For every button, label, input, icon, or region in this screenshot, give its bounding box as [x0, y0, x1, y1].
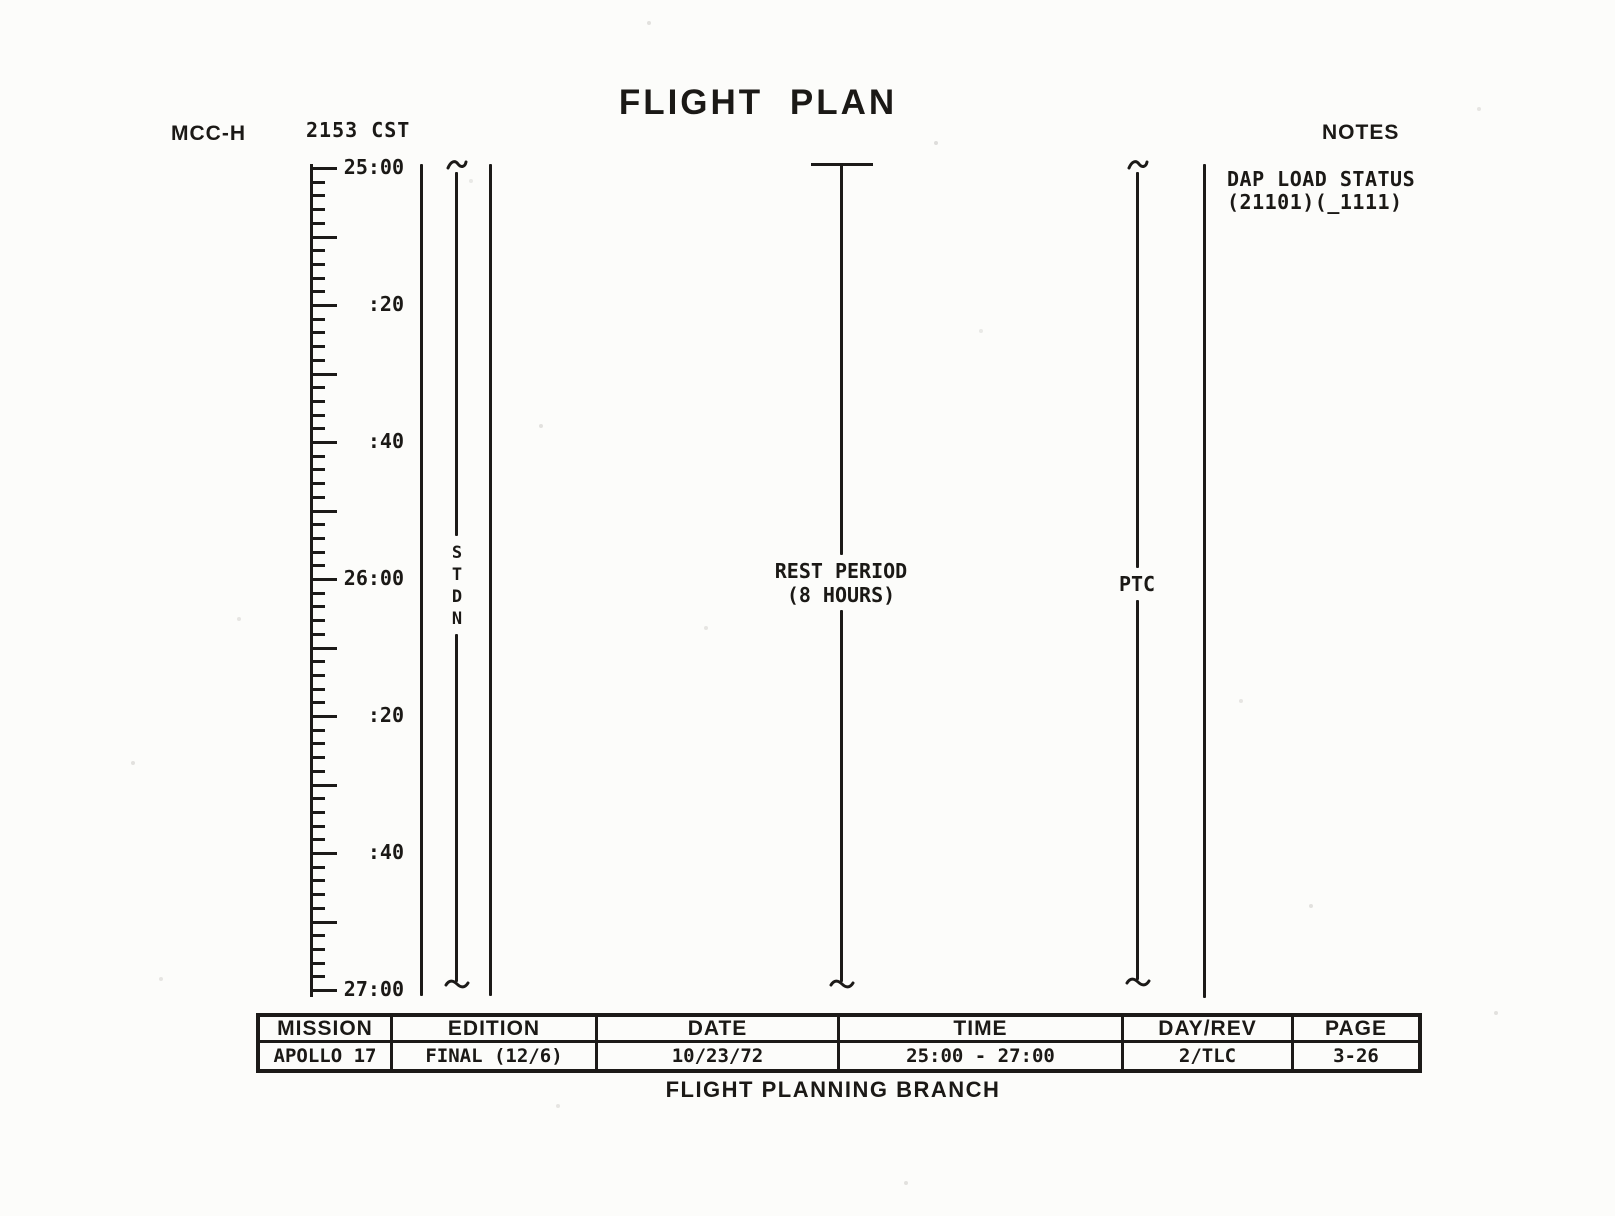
notes-divider-line — [1203, 164, 1206, 998]
ruler-tick — [311, 893, 325, 896]
rest-period-line-lower — [840, 610, 843, 982]
ruler-tick-label: :40 — [340, 430, 404, 453]
flight-planning-branch-label: FLIGHT PLANNING BRANCH — [633, 1077, 1033, 1103]
ruler-tick — [311, 482, 325, 485]
ruler-tick-label: 26:00 — [340, 567, 404, 590]
ptc-line-lower — [1136, 600, 1139, 980]
stdn-bottom-squiggle-icon — [444, 978, 470, 990]
table-header-date: DATE — [598, 1017, 840, 1043]
ruler-tick — [311, 523, 325, 526]
stdn-label: S T D N — [443, 542, 471, 630]
ptc-line-upper — [1136, 172, 1139, 568]
ruler-tick — [311, 605, 325, 608]
ruler-tick — [311, 825, 325, 828]
ruler-tick-label: :40 — [340, 841, 404, 864]
rest-period-label: REST PERIOD — [741, 559, 941, 583]
ruler-tick — [311, 619, 325, 622]
table-header-mission: MISSION — [260, 1017, 393, 1043]
ruler-tick — [311, 756, 325, 759]
ruler-tick — [311, 633, 325, 636]
ruler-tick — [311, 249, 325, 252]
ptc-bottom-squiggle-icon — [1125, 976, 1151, 988]
ruler-tick — [311, 811, 325, 814]
ruler-tick — [311, 537, 325, 540]
ruler-tick — [311, 866, 325, 869]
ruler-tick-label: 27:00 — [340, 978, 404, 1001]
ruler-tick — [311, 852, 337, 855]
timeline-line-left — [420, 164, 423, 996]
ruler-tick — [311, 290, 325, 293]
ruler-tick — [311, 304, 337, 307]
ruler-tick-label: 25:00 — [340, 156, 404, 179]
ruler-tick — [311, 496, 325, 499]
table-header-edition: EDITION — [393, 1017, 598, 1043]
timeline-line-right — [489, 164, 492, 996]
table-value-edition: FINAL (12/6) — [393, 1043, 598, 1069]
table-header-time: TIME — [840, 1017, 1124, 1043]
ruler-tick — [311, 277, 325, 280]
ruler-tick — [311, 414, 325, 417]
table-value-time: 25:00 - 27:00 — [840, 1043, 1124, 1069]
flight-plan-page: MCC-H 2153 CST FLIGHT PLAN NOTES 25:00:2… — [0, 0, 1615, 1216]
stdn-line-lower — [455, 634, 458, 982]
ruler-tick — [311, 742, 325, 745]
ruler-tick — [311, 921, 337, 924]
ruler-tick — [311, 510, 337, 513]
ruler-tick — [311, 838, 325, 841]
table-value-page: 3-26 — [1294, 1043, 1418, 1069]
rest-period-duration-label: (8 HOURS) — [741, 583, 941, 607]
ruler-tick — [311, 468, 325, 471]
ruler-tick — [311, 359, 325, 362]
ruler-tick — [311, 222, 325, 225]
ruler-tick — [311, 674, 325, 677]
ruler-tick — [311, 400, 325, 403]
ruler-tick — [311, 345, 325, 348]
ruler-tick — [311, 592, 325, 595]
ruler-tick — [311, 427, 325, 430]
ruler-tick — [311, 441, 337, 444]
ruler-tick — [311, 263, 325, 266]
cst-time-label: 2153 CST — [306, 118, 410, 142]
ruler-tick — [311, 318, 325, 321]
ruler-tick — [311, 715, 337, 718]
ruler-tick — [311, 701, 325, 704]
ruler-tick — [311, 797, 325, 800]
ruler-tick — [311, 934, 325, 937]
table-value-mission: APOLLO 17 — [260, 1043, 393, 1069]
ptc-label: PTC — [1087, 572, 1187, 596]
table-value-day-rev: 2/TLC — [1124, 1043, 1294, 1069]
scan-noise — [0, 0, 2, 2]
dap-load-status-line1: DAP LOAD STATUS — [1227, 168, 1415, 191]
ruler-tick — [311, 551, 325, 554]
time-ruler: 25:00:20:4026:00:20:4027:00 — [310, 168, 410, 990]
ruler-tick — [311, 948, 325, 951]
table-header-page: PAGE — [1294, 1017, 1418, 1043]
dap-load-status-line2: (21101)(_1111) — [1227, 191, 1415, 214]
ruler-tick — [311, 989, 337, 992]
notes-block: DAP LOAD STATUS (21101)(_1111) — [1227, 168, 1415, 214]
ruler-tick — [311, 194, 325, 197]
ruler-tick — [311, 907, 325, 910]
ruler-tick — [311, 331, 325, 334]
ruler-tick — [311, 578, 337, 581]
rest-period-bottom-squiggle-icon — [829, 978, 855, 990]
ruler-tick — [311, 729, 325, 732]
ruler-tick — [311, 564, 325, 567]
station-label: MCC-H — [171, 122, 246, 146]
table-value-date: 10/23/72 — [598, 1043, 840, 1069]
ruler-tick — [311, 208, 325, 211]
ruler-tick — [311, 373, 337, 376]
ruler-tick-label: :20 — [340, 704, 404, 727]
info-table-grid: MISSIONEDITIONDATETIMEDAY/REVPAGEAPOLLO … — [260, 1017, 1418, 1069]
ruler-tick — [311, 688, 325, 691]
ruler-tick — [311, 167, 337, 170]
ruler-tick — [311, 386, 325, 389]
ruler-tick — [311, 236, 337, 239]
ruler-tick — [311, 660, 325, 663]
rest-period-line-upper — [840, 163, 843, 555]
ruler-tick — [311, 784, 337, 787]
notes-heading: NOTES — [1322, 121, 1399, 145]
page-title: FLIGHT PLAN — [612, 83, 904, 123]
ruler-tick — [311, 181, 325, 184]
ruler-tick — [311, 770, 325, 773]
ruler-tick — [311, 647, 337, 650]
ruler-tick — [311, 975, 325, 978]
ruler-tick-label: :20 — [340, 293, 404, 316]
mission-info-table: MISSIONEDITIONDATETIMEDAY/REVPAGEAPOLLO … — [256, 1013, 1422, 1073]
ruler-tick — [311, 879, 325, 882]
ruler-tick — [311, 962, 325, 965]
ruler-tick — [311, 455, 325, 458]
table-header-day-rev: DAY/REV — [1124, 1017, 1294, 1043]
stdn-line-upper — [455, 172, 458, 536]
